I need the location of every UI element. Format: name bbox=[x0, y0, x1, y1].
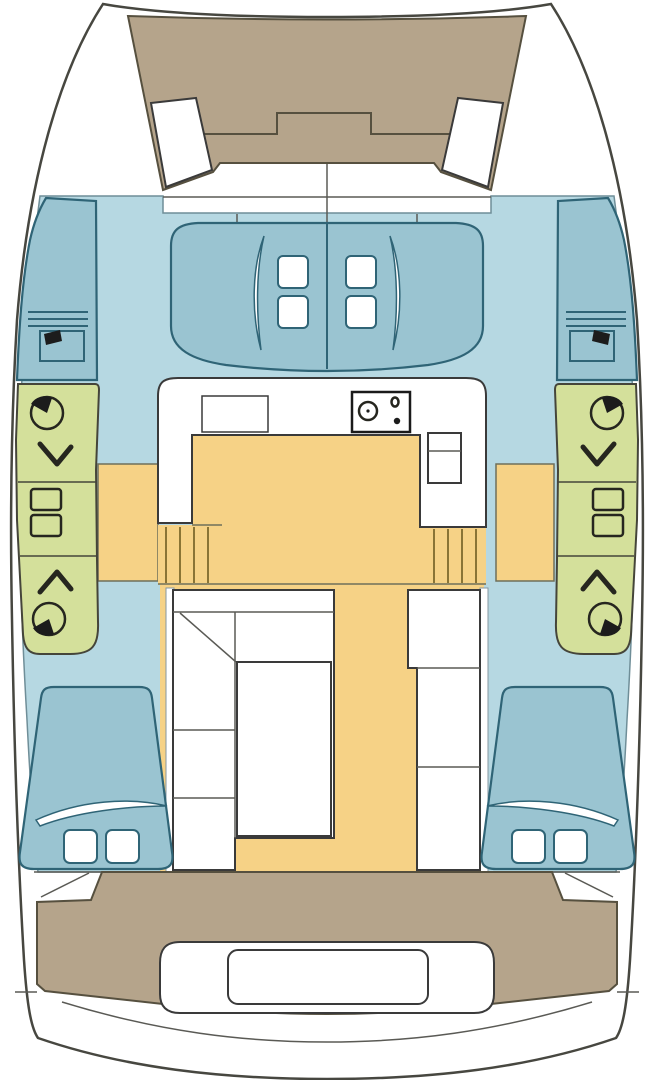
starboard-salon-unit bbox=[408, 590, 480, 870]
pillow bbox=[346, 256, 376, 288]
pillow bbox=[278, 296, 308, 328]
starboard-head bbox=[555, 384, 638, 654]
pillow bbox=[106, 830, 139, 863]
aft-cabin-starboard bbox=[482, 687, 635, 869]
pillow bbox=[554, 830, 587, 863]
cockpit-bench bbox=[160, 942, 494, 1013]
dinette-seating bbox=[173, 590, 334, 870]
pillow bbox=[512, 830, 545, 863]
catamaran-floor-plan bbox=[0, 0, 654, 1080]
pillow bbox=[346, 296, 376, 328]
port-hull-corridor bbox=[98, 464, 158, 581]
starboard-hull-corridor bbox=[496, 464, 554, 581]
aft-cabin-port bbox=[20, 687, 173, 869]
stove-icon bbox=[352, 392, 410, 432]
dinette-table bbox=[237, 662, 331, 836]
galley-cabinet bbox=[202, 396, 268, 432]
pillow bbox=[278, 256, 308, 288]
pillow bbox=[64, 830, 97, 863]
cockpit-bench-back bbox=[228, 950, 428, 1004]
galley-floor bbox=[192, 435, 420, 527]
port-head bbox=[16, 384, 99, 654]
galley-sink bbox=[428, 433, 461, 483]
